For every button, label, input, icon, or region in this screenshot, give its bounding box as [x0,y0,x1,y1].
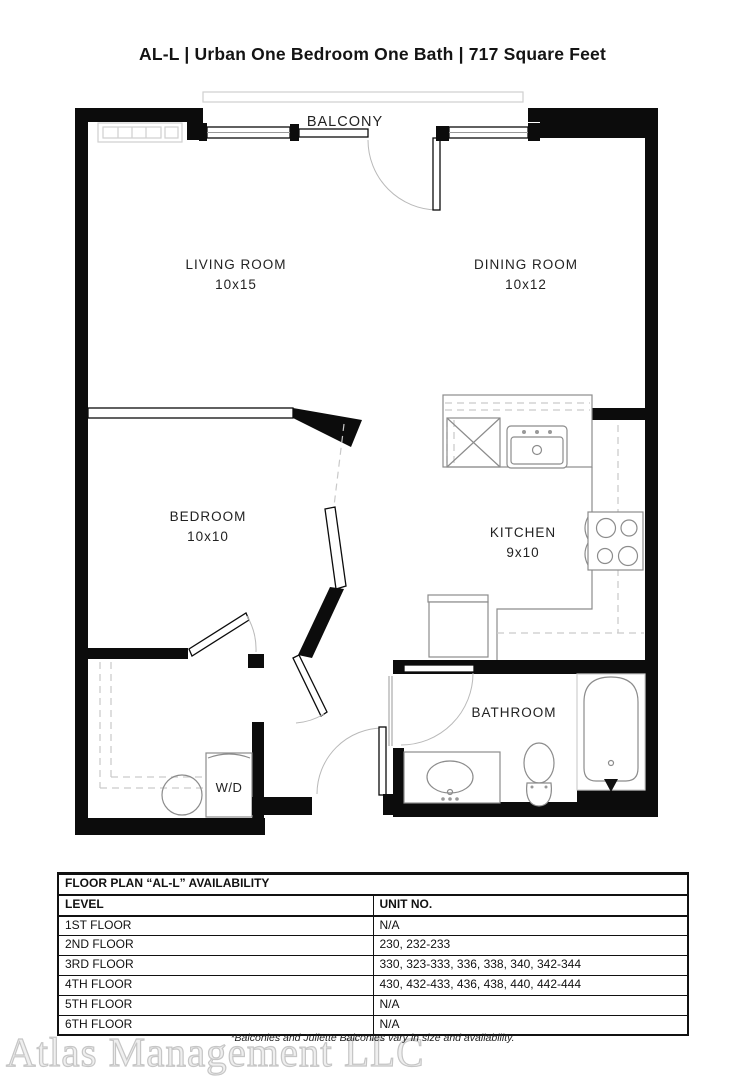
bedroom-partition-wall [88,408,362,447]
level-cell: 4TH FLOOR [58,975,373,995]
toilet [524,743,554,806]
balcony-door [368,126,449,210]
availability-table: FLOOR PLAN “AL-L” AVAILABILITY LEVEL UNI… [57,872,689,1036]
bedroom-door [189,613,256,656]
table-row: 1ST FLOOR N/A [58,916,688,936]
units-cell: N/A [373,995,688,1015]
dining-room-dims: 10x12 [505,277,547,292]
balcony-sill [299,129,368,137]
units-cell: 230, 232-233 [373,936,688,956]
bedroom-sliding-door [298,424,346,658]
table-title: FLOOR PLAN “AL-L” AVAILABILITY [58,874,688,895]
refrigerator [428,595,488,657]
table-row: 3RD FLOOR 330, 323-333, 336, 338, 340, 3… [58,956,688,976]
bedroom-dims: 10x10 [187,529,229,544]
balcony-label: BALCONY [307,114,383,130]
floor-plan-page: AL-L | Urban One Bedroom One Bath | 717 … [0,0,745,1080]
vanity-sink [404,752,500,803]
wall-stub [248,654,264,668]
level-cell: 2ND FLOOR [58,936,373,956]
bedroom-label: BEDROOM [170,509,247,524]
entry-door [317,727,404,815]
kitchen-dims: 9x10 [506,545,539,560]
level-cell: 1ST FLOOR [58,916,373,936]
units-cell: 330, 323-333, 336, 338, 340, 342-344 [373,956,688,976]
units-cell: 430, 432-433, 436, 438, 440, 442-444 [373,975,688,995]
table-header-row: LEVEL UNIT NO. [58,895,688,916]
wd-label: W/D [216,780,243,795]
closet-door [293,655,327,723]
bathroom-label: BATHROOM [472,705,557,720]
baseboard-heater [98,123,182,142]
balcony-window-right [449,123,540,141]
level-cell: 3RD FLOOR [58,956,373,976]
living-room-label: LIVING ROOM [185,257,286,272]
table-row: 2ND FLOOR 230, 232-233 [58,936,688,956]
kitchen-sink [507,426,567,468]
floor-plan: BALCONY [0,0,745,860]
balcony-window-left [199,123,299,141]
stove [585,512,643,570]
kitchen-label: KITCHEN [490,525,556,540]
table-title-row: FLOOR PLAN “AL-L” AVAILABILITY [58,874,688,895]
bathtub [577,674,645,792]
room-labels: LIVING ROOM 10x15 DINING ROOM 10x12 BEDR… [170,257,578,720]
level-cell: 5TH FLOOR [58,995,373,1015]
balcony-rail [203,92,523,102]
units-cell: N/A [373,916,688,936]
water-heater [162,775,202,815]
column-header-unit-no: UNIT NO. [373,895,688,916]
footnote: *Balconies and Juliette Balconies vary i… [0,1032,745,1044]
bedroom-bottom-wall [88,648,188,659]
bathroom-door [401,665,474,745]
table-row: 5TH FLOOR N/A [58,995,688,1015]
table-row: 4TH FLOOR 430, 432-433, 436, 438, 440, 4… [58,975,688,995]
entry-wall [252,797,312,815]
dining-room-label: DINING ROOM [474,257,578,272]
column-header-level: LEVEL [58,895,373,916]
living-room-dims: 10x15 [215,277,257,292]
exterior-walls [75,108,658,835]
